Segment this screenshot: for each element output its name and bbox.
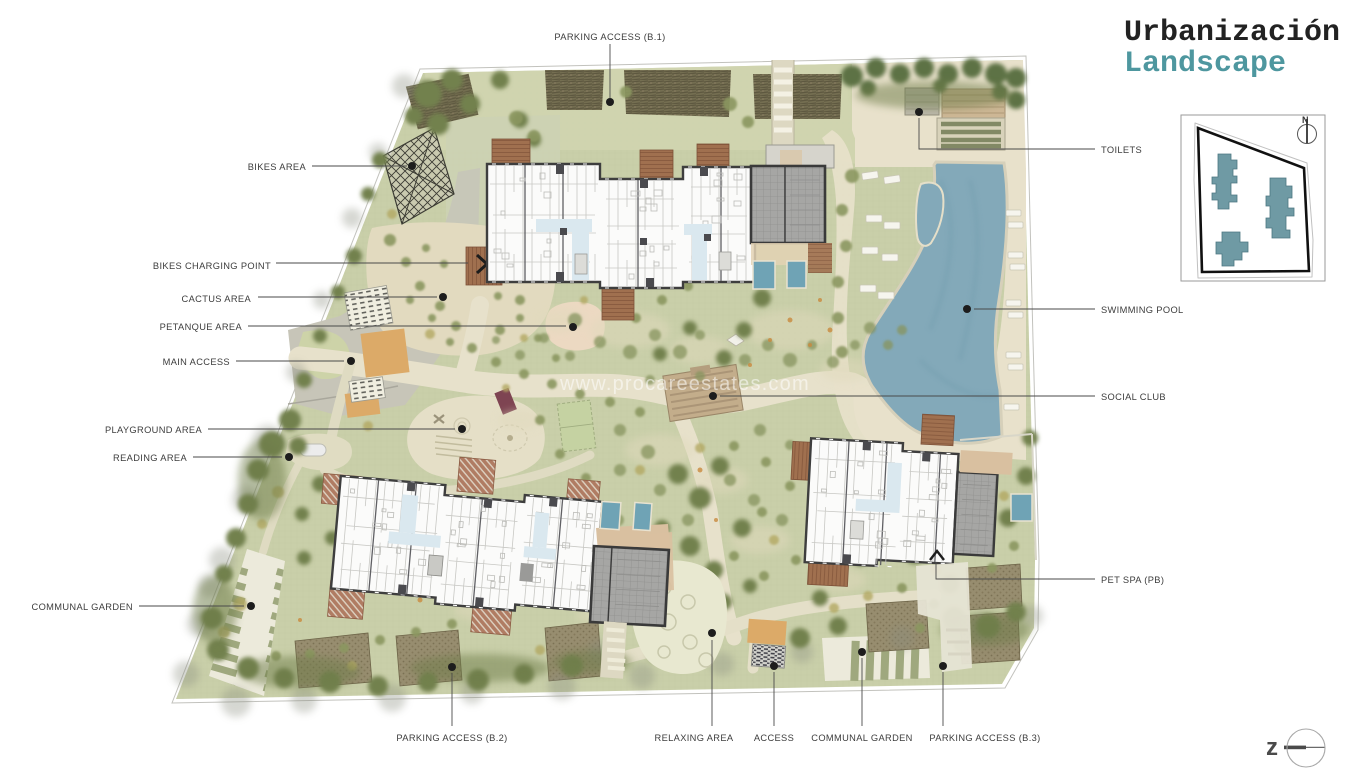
svg-text:PETANQUE AREA: PETANQUE AREA — [160, 322, 243, 332]
svg-text:SWIMMING POOL: SWIMMING POOL — [1101, 305, 1184, 315]
svg-text:PARKING ACCESS (B.1): PARKING ACCESS (B.1) — [554, 32, 665, 42]
svg-text:z: z — [1266, 734, 1278, 761]
svg-text:ACCESS: ACCESS — [754, 733, 794, 743]
svg-text:READING AREA: READING AREA — [113, 453, 187, 463]
svg-text:COMMUNAL GARDEN: COMMUNAL GARDEN — [811, 733, 913, 743]
svg-text:MAIN ACCESS: MAIN ACCESS — [163, 357, 230, 367]
svg-text:PARKING ACCESS (B.2): PARKING ACCESS (B.2) — [396, 733, 507, 743]
svg-text:Urbanización: Urbanización — [1124, 16, 1340, 50]
svg-text:N: N — [1302, 115, 1309, 125]
svg-text:RELAXING AREA: RELAXING AREA — [655, 733, 734, 743]
svg-text:CACTUS AREA: CACTUS AREA — [182, 294, 252, 304]
svg-text:PLAYGROUND AREA: PLAYGROUND AREA — [105, 425, 202, 435]
svg-text:www.procareestates.com: www.procareestates.com — [559, 373, 810, 395]
svg-text:PET SPA (PB): PET SPA (PB) — [1101, 575, 1164, 585]
svg-text:BIKES CHARGING POINT: BIKES CHARGING POINT — [153, 261, 271, 271]
svg-text:PARKING ACCESS (B.3): PARKING ACCESS (B.3) — [929, 733, 1040, 743]
svg-text:Landscape: Landscape — [1124, 47, 1286, 81]
svg-text:COMMUNAL GARDEN: COMMUNAL GARDEN — [32, 602, 134, 612]
svg-text:BIKES AREA: BIKES AREA — [248, 162, 307, 172]
svg-text:SOCIAL CLUB: SOCIAL CLUB — [1101, 392, 1166, 402]
svg-text:TOILETS: TOILETS — [1101, 145, 1142, 155]
